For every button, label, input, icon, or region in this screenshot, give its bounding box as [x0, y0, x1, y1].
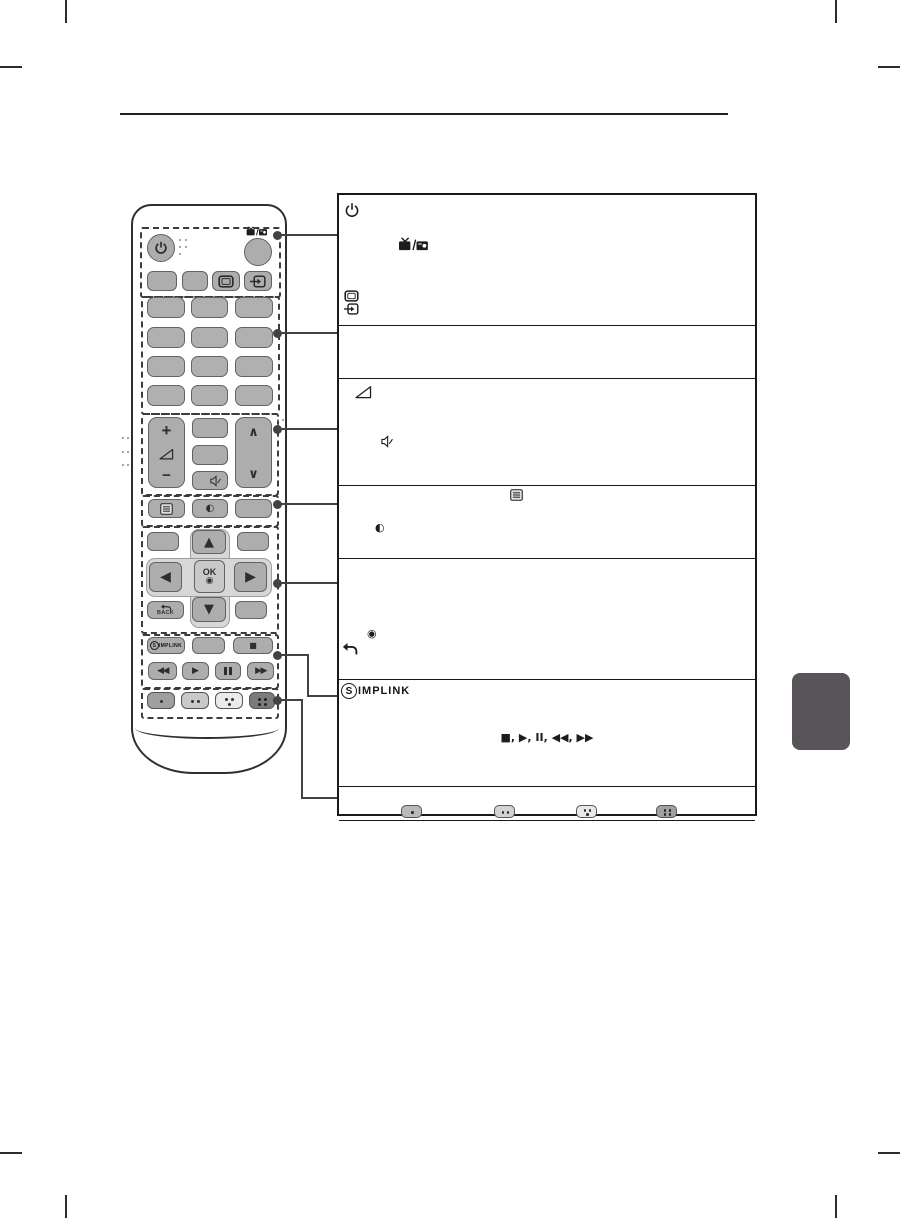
chapter-side-tab [792, 673, 850, 750]
ok-target-icon: ◉ [367, 627, 377, 640]
power-button [147, 234, 175, 262]
green-key-two-dots [181, 692, 209, 709]
crop-mark-bottom-right-vertical [835, 1195, 837, 1218]
stop-icon: ■ [249, 642, 257, 650]
power-icon [154, 241, 168, 255]
four-dot-key [656, 805, 677, 818]
settings-menu-icon [510, 489, 523, 501]
volume-button: + − [148, 417, 185, 488]
simplink-logo: SIMPLINK [341, 683, 410, 699]
numpad-button [191, 385, 228, 406]
numpad-button [147, 327, 185, 348]
play-button: ▶ [182, 662, 209, 680]
arrow-right-icon: ▶ [245, 570, 256, 584]
callout-line-navigation [279, 582, 337, 584]
playback-sequence: ■, ▶, II, ◀◀, ▶▶ [339, 731, 755, 744]
callout-line-simplink-v [307, 654, 309, 697]
callout-line-simplink-h2 [307, 695, 337, 697]
stop-button: ■ [233, 637, 273, 654]
table-row-navigation [339, 559, 755, 680]
one-dot-key [401, 805, 422, 818]
description-table: ◐ ◉ SIMPLINK ■, ▶, II, ◀◀, ▶▶ [337, 193, 757, 816]
play-icon: ▶ [192, 667, 199, 676]
table-row-numpad [339, 326, 755, 379]
quick-menu-icon: ◐ [206, 504, 215, 514]
crop-mark-bottom-left-vertical [65, 1195, 67, 1218]
mid-button-2 [192, 445, 228, 465]
input-icon [344, 303, 359, 315]
arrow-up-icon: ▲ [204, 536, 214, 549]
volume-up-label: + [162, 422, 172, 439]
callout-line-color-h2 [301, 797, 337, 799]
volume-icon [159, 448, 174, 460]
input-icon [250, 275, 266, 288]
blue-key-four-dots [249, 692, 275, 709]
settings-button [148, 499, 185, 518]
red-key-one-dot [147, 692, 175, 709]
callout-line-color-h1 [279, 699, 303, 701]
volume-icon [355, 385, 372, 399]
crop-mark-right-horizontal [878, 66, 900, 68]
callout-line-volume [279, 428, 337, 430]
nav-row-button-3 [235, 601, 267, 619]
crop-mark-top-left-vertical [65, 0, 67, 23]
table-row-menu [339, 486, 755, 559]
callout-line-numpad [279, 332, 337, 334]
arrow-down-icon: ▼ [204, 603, 214, 616]
numpad-button [147, 297, 185, 318]
numpad-button [235, 356, 273, 377]
crop-mark-bottom-right-horizontal [878, 1152, 900, 1154]
numpad-button [191, 356, 228, 377]
back-button: BACK [147, 601, 184, 619]
mute-button [192, 471, 228, 490]
callout-line-simplink-h1 [279, 654, 309, 656]
crop-mark-bottom-left-horizontal [0, 1152, 22, 1154]
header-rule [120, 113, 728, 115]
tv-radio-icon [396, 237, 430, 251]
rewind-icon: ◀◀ [157, 667, 168, 676]
simplink-text: IMPLINK [358, 685, 410, 697]
tv-radio-button [244, 238, 272, 266]
mute-icon [210, 475, 221, 487]
fast-forward-button: ▶▶ [247, 662, 274, 680]
simplink-s-icon: S [150, 641, 159, 650]
mute-icon [381, 435, 393, 448]
mid-button-1 [192, 418, 228, 438]
settings-menu-icon [160, 503, 173, 515]
crop-mark-top-right-vertical [835, 0, 837, 23]
menu-row-button-3 [235, 499, 272, 518]
numpad-button [191, 327, 228, 348]
top-button-2 [182, 271, 208, 291]
arrow-left-icon: ◀ [160, 570, 171, 584]
callout-line-menu [279, 503, 337, 505]
channel-up-icon: ∧ [248, 425, 259, 438]
rewind-button: ◀◀ [148, 662, 177, 680]
ok-target-icon: ◉ [206, 577, 214, 586]
nav-row-button-2 [237, 532, 269, 551]
numpad-button [235, 385, 273, 406]
numpad-button [235, 327, 273, 348]
nav-left-button: ◀ [149, 562, 182, 592]
back-icon [342, 641, 358, 655]
quick-menu-icon: ◐ [375, 521, 385, 534]
numpad-button [235, 297, 273, 318]
nav-down-button: ▼ [192, 597, 226, 622]
nav-right-button: ▶ [234, 562, 267, 592]
simplink-text: IMPLINK [159, 643, 182, 649]
simplink-logo: SIMPLINK [150, 641, 182, 650]
manual-page: + − ∧ ∨ ◐ ▲ ◀ [0, 0, 900, 1218]
screen-off-button [212, 271, 240, 291]
crop-mark-left-horizontal [0, 66, 22, 68]
yellow-key-three-dots [215, 692, 243, 709]
tv-radio-icon [246, 226, 267, 236]
monitor-icon [344, 290, 359, 302]
two-dot-key [494, 805, 515, 818]
channel-button: ∧ ∨ [235, 417, 272, 488]
nav-row-button-1 [147, 532, 179, 551]
top-button-1 [147, 271, 177, 291]
table-row-power [339, 195, 755, 326]
monitor-icon [218, 275, 234, 288]
input-button [244, 271, 272, 291]
power-label-dots [179, 239, 189, 257]
pause-icon [223, 667, 233, 675]
volume-down-label: − [162, 468, 171, 483]
numpad-button [147, 385, 185, 406]
three-dot-key [576, 805, 597, 818]
numpad-button [147, 356, 185, 377]
numpad-button [191, 297, 228, 318]
simplink-button: SIMPLINK [147, 637, 185, 654]
back-label: BACK [157, 611, 174, 617]
nav-up-button: ▲ [192, 530, 226, 554]
fast-forward-icon: ▶▶ [255, 667, 266, 676]
ok-button: OK ◉ [194, 560, 225, 593]
callout-line-color-v [301, 699, 303, 799]
callout-line-power [280, 234, 337, 236]
quick-menu-button: ◐ [192, 499, 228, 518]
pause-button [215, 662, 241, 680]
channel-down-icon: ∨ [248, 467, 259, 480]
playback-row-button-2 [192, 637, 225, 654]
table-row-volume [339, 379, 755, 486]
simplink-s-icon: S [341, 683, 357, 699]
power-icon [344, 202, 360, 219]
volume-label-dots-left [122, 437, 130, 467]
